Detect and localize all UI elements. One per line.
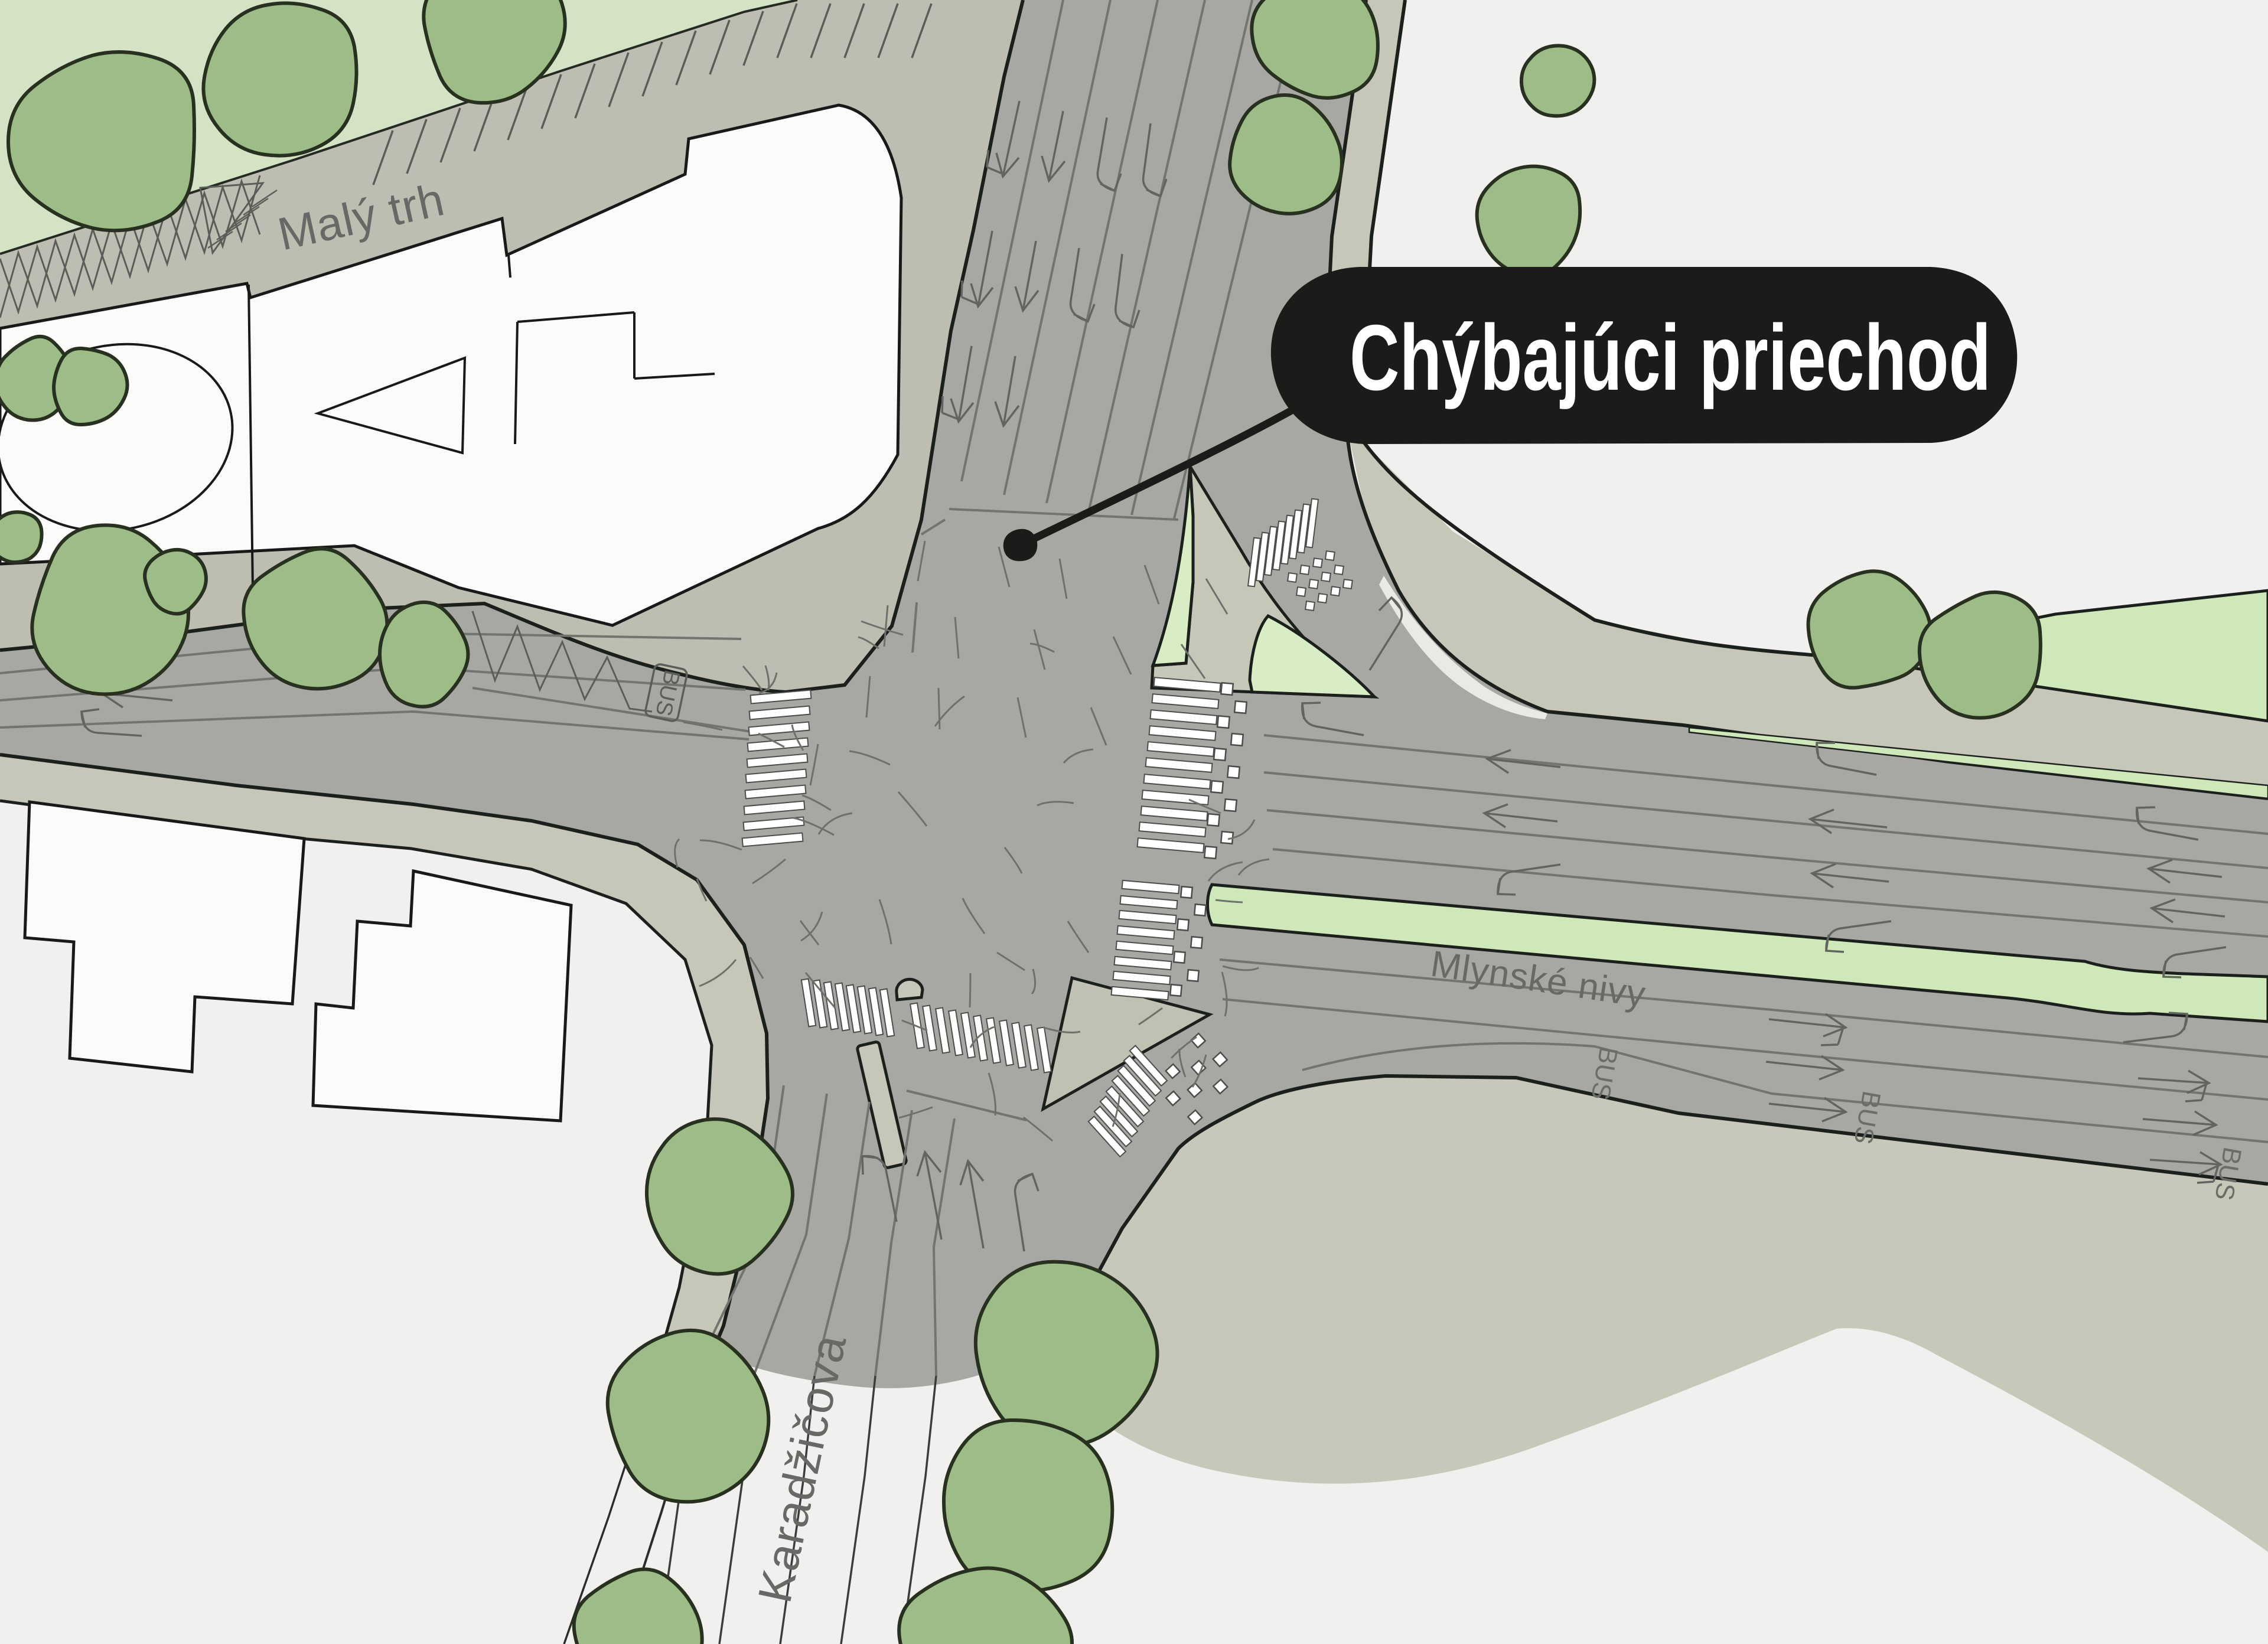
svg-text:Chýbajúci priechod: Chýbajúci priechod — [1350, 306, 1991, 410]
